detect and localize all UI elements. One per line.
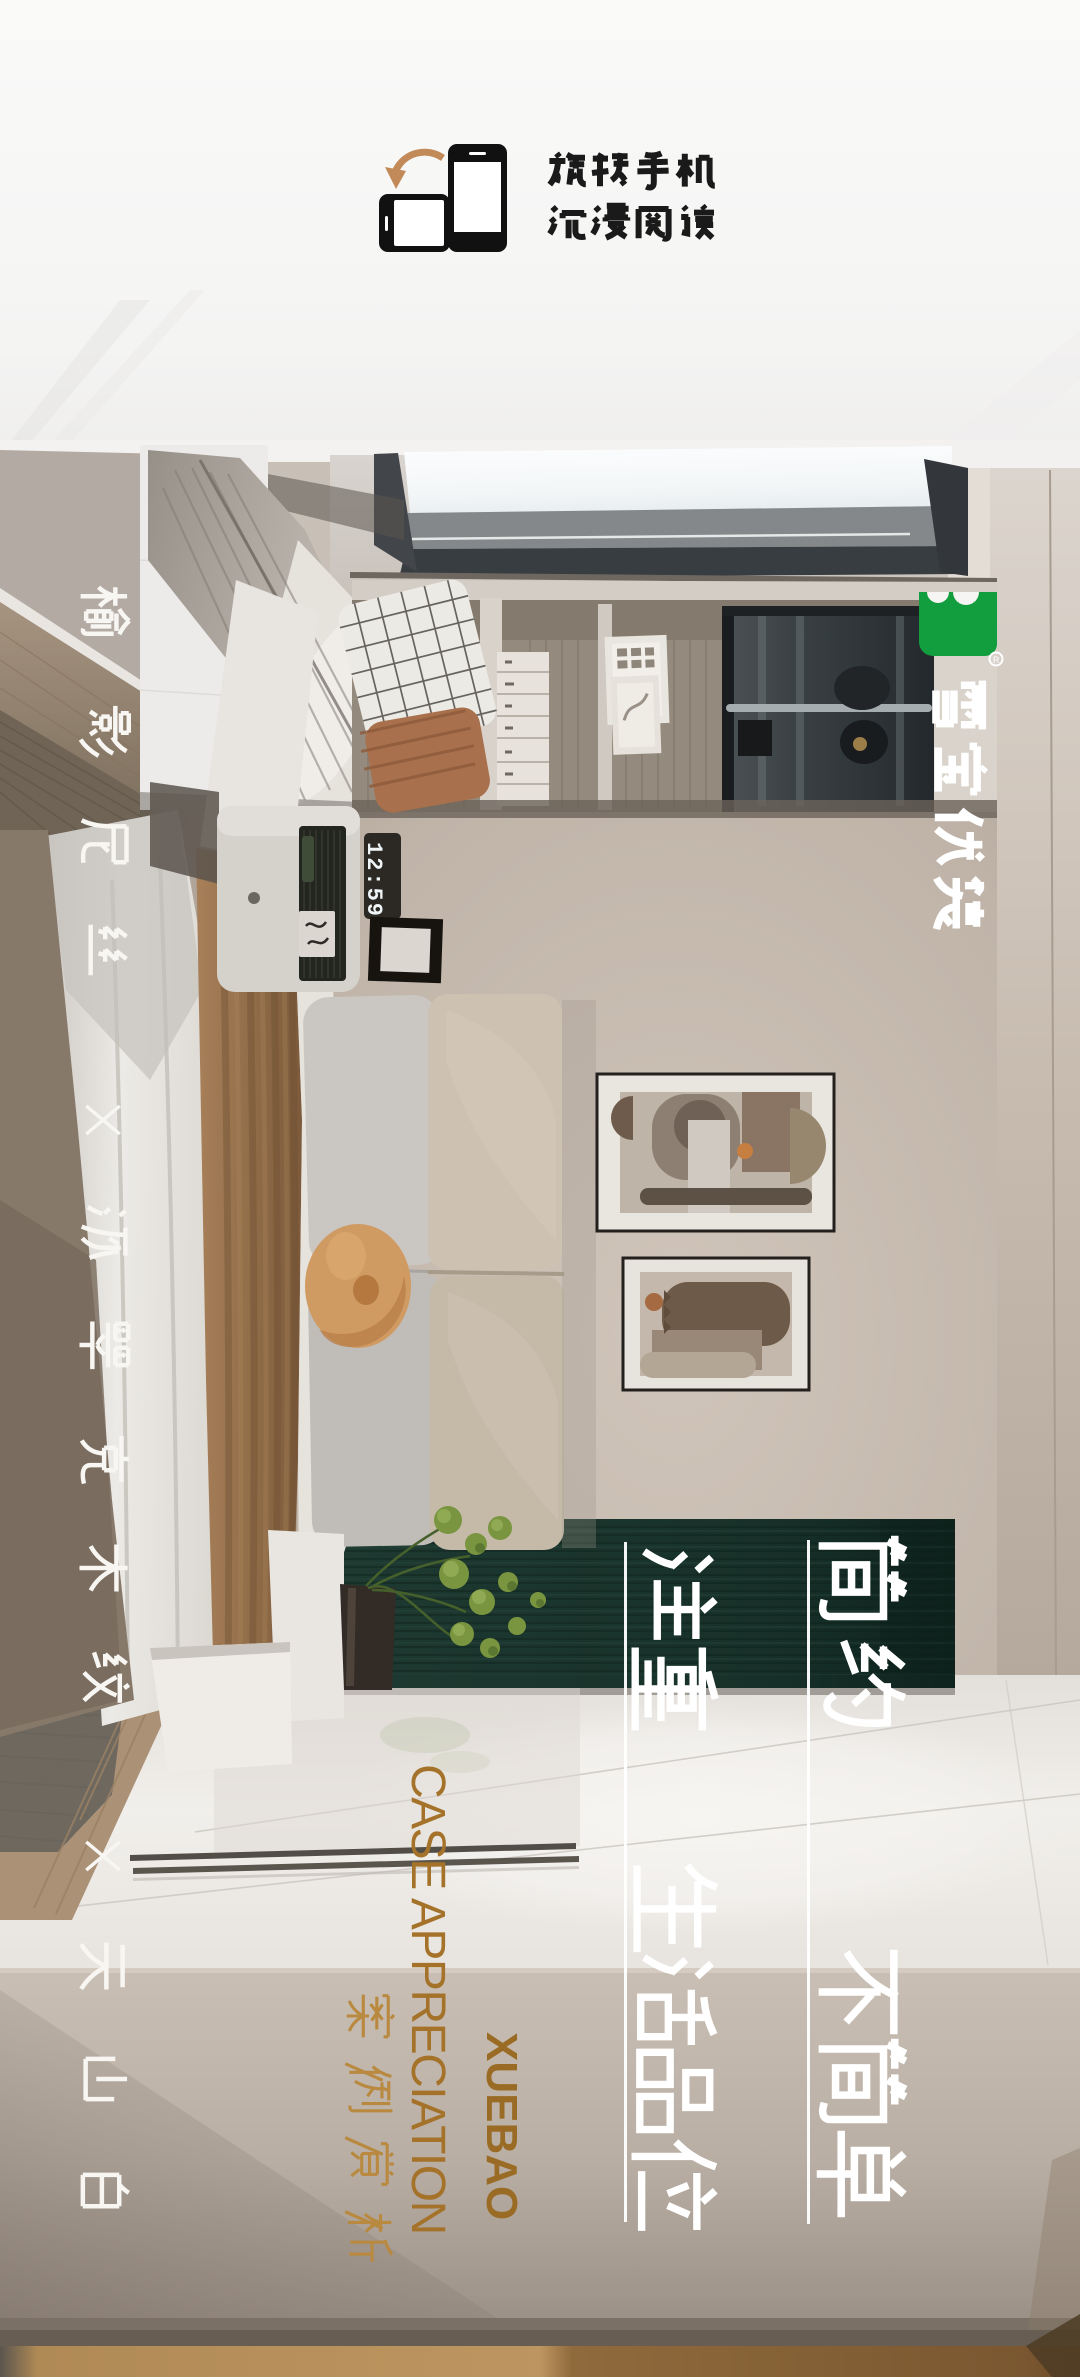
svg-text:XUEBAO: XUEBAO [477,2032,526,2220]
svg-text:12:59: 12:59 [361,842,386,918]
svg-text:CASE APPRECIATION: CASE APPRECIATION [401,1764,454,2234]
svg-text:R: R [993,655,1000,665]
